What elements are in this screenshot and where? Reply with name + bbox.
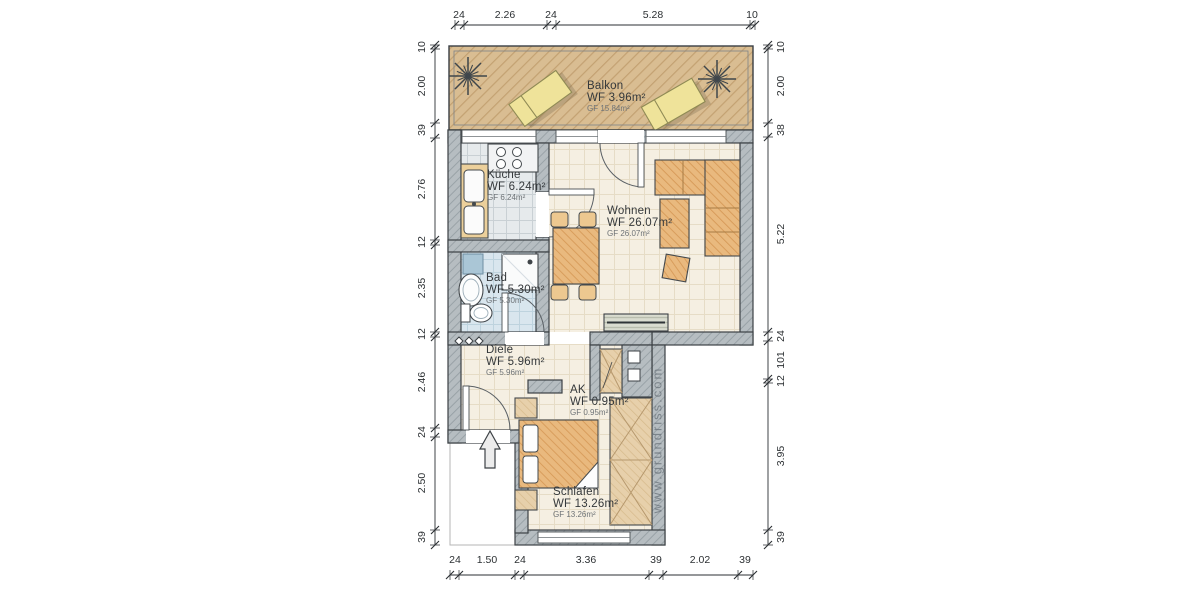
dim-left-0: 10 xyxy=(416,41,428,53)
dim-right-1: 2.00 xyxy=(775,76,787,96)
dim-left-10: 39 xyxy=(416,531,428,543)
dim-left-2: 39 xyxy=(416,124,428,136)
toilet xyxy=(470,304,492,322)
sink xyxy=(464,170,484,202)
dim-right-2: 38 xyxy=(775,124,787,136)
coat-rack-icon xyxy=(455,337,483,345)
chair xyxy=(579,285,596,300)
dim-right-0: 10 xyxy=(775,41,787,53)
dim-left-4: 12 xyxy=(416,236,428,248)
dim-left-6: 12 xyxy=(416,328,428,340)
stove xyxy=(488,144,538,172)
balcony xyxy=(449,46,753,135)
coffee-table xyxy=(662,254,690,282)
chair xyxy=(551,212,568,227)
dim-left-5: 2.35 xyxy=(416,278,428,298)
sink xyxy=(464,206,484,234)
floorplan-drawing xyxy=(0,0,1200,600)
wardrobe xyxy=(610,398,652,525)
nightstand xyxy=(515,398,537,418)
dim-left-8: 24 xyxy=(416,426,428,438)
dim-right-4: 24 xyxy=(775,330,787,342)
dim-bottom-3: 3.36 xyxy=(576,554,596,566)
dim-bottom-2: 24 xyxy=(514,554,526,566)
pillow xyxy=(523,456,538,483)
dim-right-7: 3.95 xyxy=(775,446,787,466)
dim-left-9: 2.50 xyxy=(416,473,428,493)
dim-left-7: 2.46 xyxy=(416,372,428,392)
dim-top-3: 5.28 xyxy=(643,9,663,21)
dim-top-1: 2.26 xyxy=(495,9,515,21)
meter-box xyxy=(628,351,640,363)
dining-table xyxy=(553,228,599,284)
dim-bottom-1: 1.50 xyxy=(477,554,497,566)
dim-left-1: 2.00 xyxy=(416,76,428,96)
dim-bottom-6: 39 xyxy=(739,554,751,566)
dim-bottom-4: 39 xyxy=(650,554,662,566)
floorplan-page: Balkon WF 3.96m² GF 15.84m² Küche WF 6.2… xyxy=(0,0,1200,600)
nightstand xyxy=(515,490,537,510)
dim-bottom-5: 2.02 xyxy=(690,554,710,566)
dim-top-4: 10 xyxy=(746,9,758,21)
pillow xyxy=(523,425,538,452)
meter-box xyxy=(628,369,640,381)
dim-right-8: 39 xyxy=(775,531,787,543)
dim-top-2: 24 xyxy=(545,9,557,21)
chair xyxy=(551,285,568,300)
bath-shelf xyxy=(463,254,483,274)
dim-right-3: 5.22 xyxy=(775,224,787,244)
dim-left-3: 2.76 xyxy=(416,179,428,199)
toilet-tank xyxy=(461,304,470,322)
watermark-text: www.grundriss.com xyxy=(650,367,665,514)
dim-right-6: 12 xyxy=(775,375,787,387)
dim-bottom-0: 24 xyxy=(449,554,461,566)
armchair xyxy=(660,199,689,248)
chair xyxy=(579,212,596,227)
dim-right-5: 101 xyxy=(775,351,787,369)
dim-top-0: 24 xyxy=(453,9,465,21)
